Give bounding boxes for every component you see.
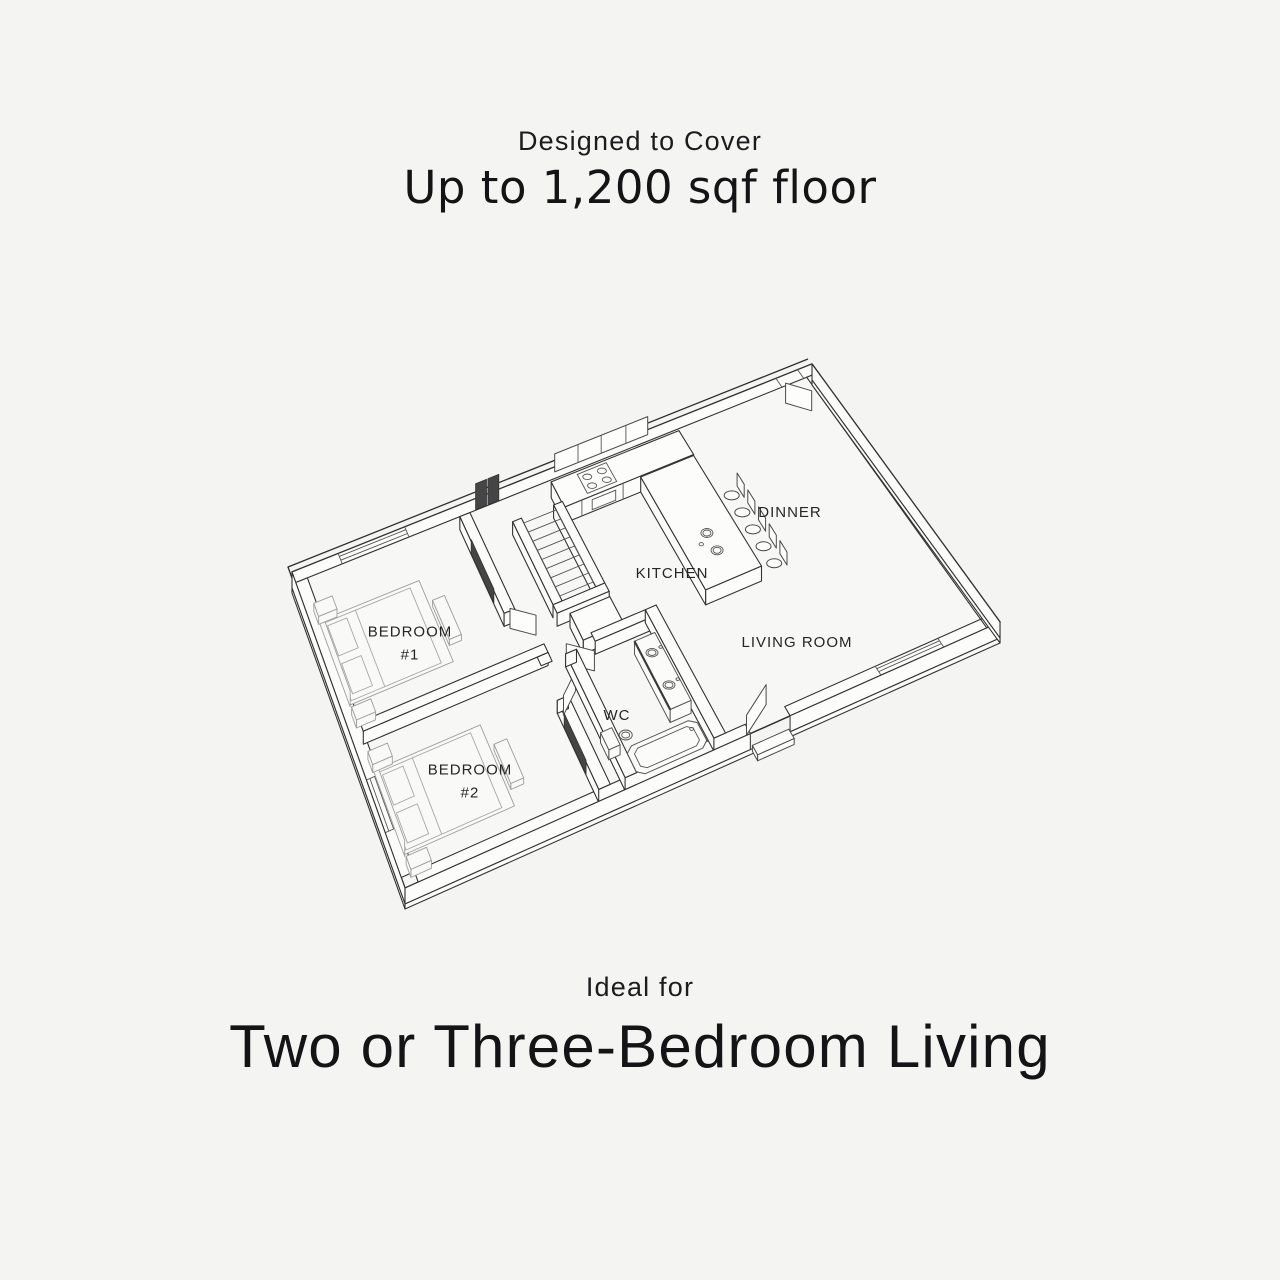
footer-eyebrow: Ideal for [0, 972, 1280, 1003]
footer-title: Two or Three-Bedroom Living [0, 1012, 1280, 1081]
room-label-bedroom-2: BEDROOM #2 [428, 760, 513, 805]
room-label-living-room: LIVING ROOM [741, 632, 852, 655]
floor-plan: DINNER KITCHEN LIVING ROOM WC BEDROOM #1… [0, 0, 1280, 1280]
floor-plan-illustration [0, 0, 1280, 1280]
room-label-bedroom-1: BEDROOM #1 [368, 622, 453, 667]
room-label-wc: WC [604, 705, 631, 728]
room-label-kitchen: KITCHEN [636, 563, 709, 586]
room-label-dinner: DINNER [758, 502, 822, 525]
page: Designed to Cover Up to 1,200 sqf floor … [0, 0, 1280, 1280]
